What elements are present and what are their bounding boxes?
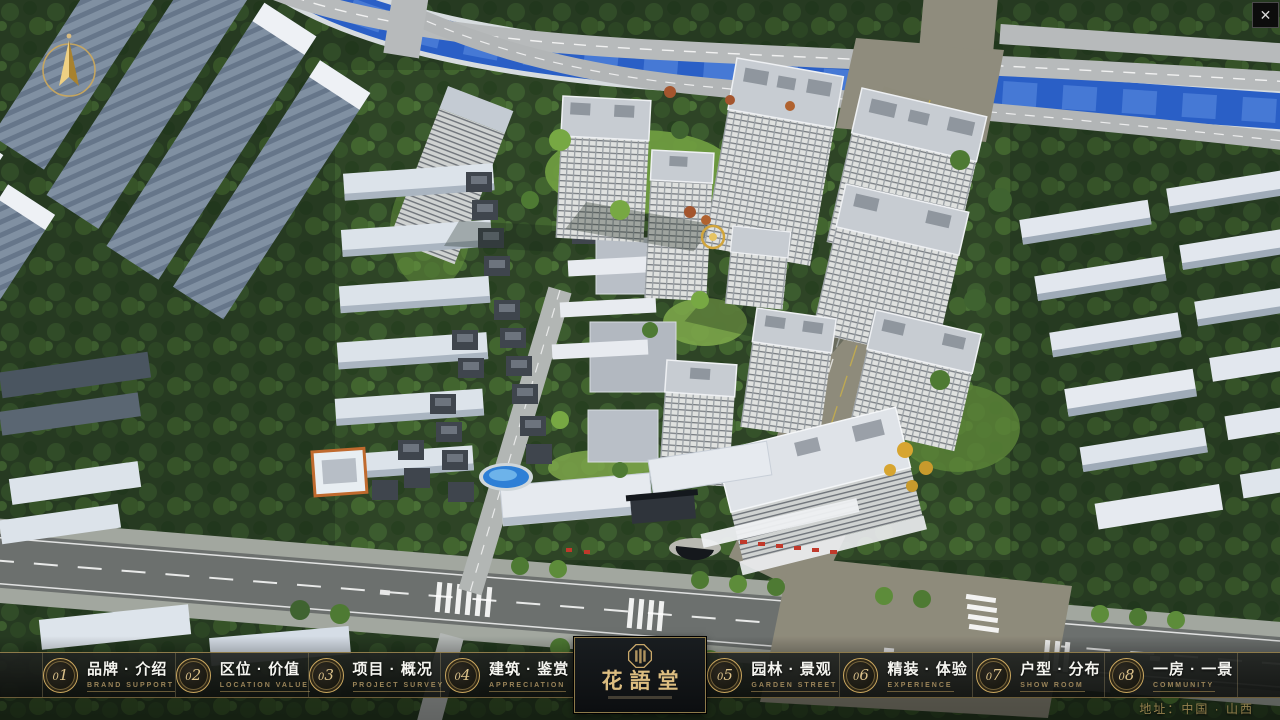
project-address: 地址：中国 · 山西 bbox=[1139, 700, 1254, 717]
nav-number-badge: 04 bbox=[445, 658, 480, 693]
nav-item-garden[interactable]: 05 园林 · 景观 GARDEN STREET bbox=[706, 653, 839, 697]
nav-label-zh: 户型 · 分布 bbox=[1020, 658, 1100, 679]
nav-label-zh: 品牌 · 介绍 bbox=[87, 658, 167, 679]
nav-number-badge: 01 bbox=[43, 658, 78, 693]
nav-item-floorplans[interactable]: 07 户型 · 分布 SHOW ROOM bbox=[972, 653, 1105, 697]
close-icon: ✕ bbox=[1260, 7, 1272, 23]
nav-label-zh: 项目 · 概况 bbox=[353, 658, 433, 679]
bar-spacer-left bbox=[0, 653, 42, 697]
nav-label-en: GARDEN STREET bbox=[751, 680, 838, 692]
nav-item-interior[interactable]: 06 精装 · 体验 EXPERIENCE bbox=[839, 653, 972, 697]
nav-item-architecture[interactable]: 04 建筑 · 鉴赏 APPRECIATION bbox=[440, 653, 573, 697]
nav-label-zh: 建筑 · 鉴赏 bbox=[489, 658, 569, 679]
nav-label-en: COMMUNITY bbox=[1153, 680, 1215, 692]
nav-label-zh: 区位 · 价值 bbox=[220, 658, 300, 679]
swimming-pool bbox=[479, 463, 533, 491]
nav-number-badge: 07 bbox=[976, 658, 1011, 693]
logo-tagline bbox=[608, 696, 672, 699]
nav-label-en: PROJECT SURVEY bbox=[353, 680, 446, 692]
nav-item-location[interactable]: 02 区位 · 价值 LOCATION VALUE bbox=[175, 653, 308, 697]
nav-label-en: LOCATION VALUE bbox=[220, 680, 310, 692]
clubhouse bbox=[312, 448, 367, 496]
nav-number-badge: 03 bbox=[309, 658, 344, 693]
nav-item-project[interactable]: 03 项目 · 概况 PROJECT SURVEY bbox=[308, 653, 441, 697]
project-name: 花語堂 bbox=[595, 669, 686, 692]
bar-spacer-right bbox=[1237, 653, 1280, 697]
nav-item-views[interactable]: 08 一房 · 一景 COMMUNITY bbox=[1104, 653, 1237, 697]
nav-label-en: SHOW ROOM bbox=[1020, 680, 1085, 692]
tower bbox=[725, 226, 791, 310]
project-logo-panel[interactable]: 花語堂 bbox=[574, 637, 706, 713]
tower bbox=[740, 308, 836, 438]
nav-label-en: APPRECIATION bbox=[489, 680, 566, 692]
presentation-window: ✕ 01 品牌 · 介绍 BRAND SUPPORT 02 区位 · 价值 LO… bbox=[0, 0, 1280, 720]
nav-number-badge: 08 bbox=[1109, 658, 1144, 693]
nav-label-zh: 园林 · 景观 bbox=[751, 658, 831, 679]
nav-label-en: EXPERIENCE bbox=[887, 680, 953, 692]
seal-emblem-icon bbox=[627, 643, 653, 669]
nav-label-en: BRAND SUPPORT bbox=[87, 680, 175, 692]
close-button[interactable]: ✕ bbox=[1252, 2, 1279, 28]
nav-number-badge: 06 bbox=[843, 658, 878, 693]
nav-label-zh: 一房 · 一景 bbox=[1153, 658, 1233, 679]
nav-number-badge: 05 bbox=[707, 658, 742, 693]
map-viewport[interactable] bbox=[0, 0, 1280, 720]
nav-label-zh: 精装 · 体验 bbox=[887, 658, 967, 679]
nav-item-brand[interactable]: 01 品牌 · 介绍 BRAND SUPPORT bbox=[42, 653, 175, 697]
nav-number-badge: 02 bbox=[176, 658, 211, 693]
compass[interactable] bbox=[36, 24, 102, 108]
